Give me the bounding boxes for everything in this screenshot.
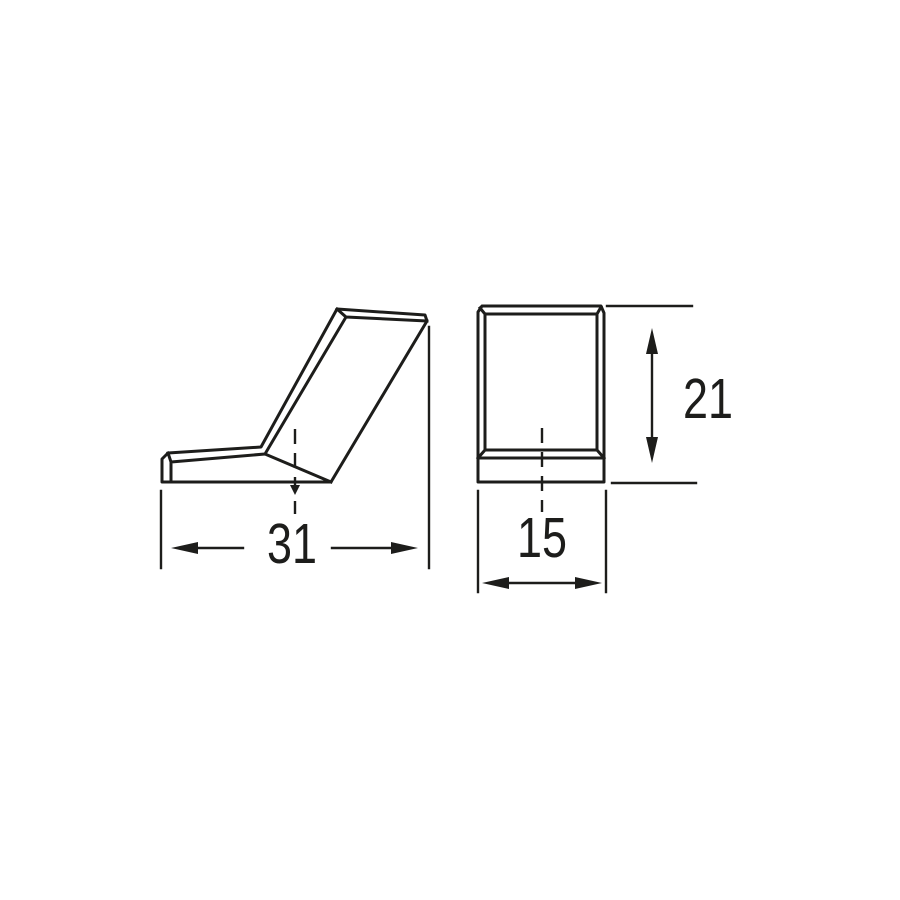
- side-view: [162, 309, 427, 514]
- front-view: [478, 306, 604, 512]
- centerline-arrow-icon: [290, 485, 300, 495]
- dim-arrow-down-icon: [646, 437, 658, 463]
- front-height-label: 21: [683, 367, 733, 431]
- dim-arrow-right-icon: [575, 577, 602, 589]
- technical-drawing: 31 21 15: [0, 0, 900, 900]
- side-view-edges: [168, 309, 427, 482]
- front-height-dimension: 21: [607, 306, 733, 483]
- dim-arrow-right-icon: [391, 542, 418, 554]
- dim-arrow-left-icon: [171, 542, 198, 554]
- dim-arrow-left-icon: [482, 577, 509, 589]
- dim-arrow-up-icon: [646, 328, 658, 354]
- side-width-label: 31: [267, 512, 317, 576]
- front-width-label: 15: [517, 506, 567, 570]
- front-width-dimension: 15: [478, 491, 606, 592]
